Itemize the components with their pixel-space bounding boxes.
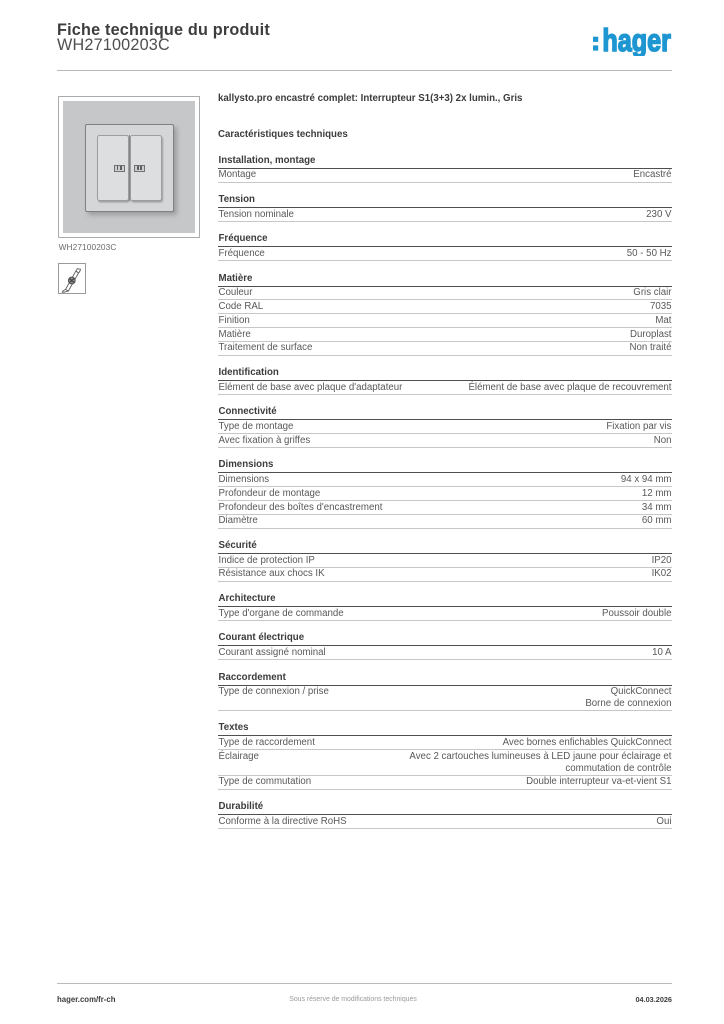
svg-text:hager: hager xyxy=(602,26,671,56)
